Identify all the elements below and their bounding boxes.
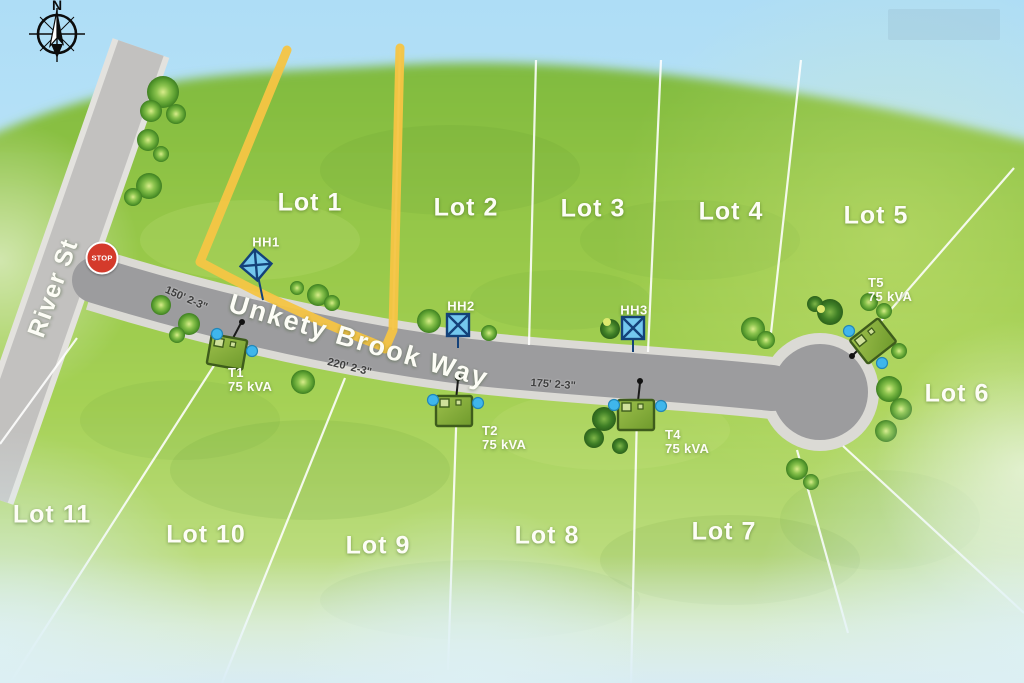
lot-label-8: Lot 8 [515, 522, 580, 551]
lot-label-6: Lot 6 [925, 380, 990, 409]
lot-label-11: Lot 11 [13, 501, 91, 530]
transformer-t4-icon [618, 400, 654, 430]
transformer-t2-capacity: 75 kVA [482, 438, 526, 452]
transformer-t5-capacity: 75 kVA [868, 290, 912, 304]
transformer-t4-capacity: 75 kVA [665, 442, 709, 456]
stop-sign: STOP [86, 242, 119, 275]
lot-label-5: Lot 5 [844, 202, 909, 231]
handhole-hh2-icon [447, 314, 469, 336]
transformer-label-t2: T2 75 kVA [482, 424, 526, 452]
transformer-t2-icon [436, 396, 472, 426]
transformer-t1-id: T1 [228, 366, 272, 380]
site-plan-graphic [0, 0, 1024, 683]
handhole-label-hh3: HH3 [620, 303, 648, 318]
transformer-label-t5: T5 75 kVA [868, 276, 912, 304]
lot-label-7: Lot 7 [692, 518, 757, 547]
lot-label-3: Lot 3 [561, 195, 626, 224]
transformer-label-t4: T4 75 kVA [665, 428, 709, 456]
transformer-t2-id: T2 [482, 424, 526, 438]
site-plan-map: N River St Unkety Brook Way STOP Lot 1 L… [0, 0, 1024, 683]
lot-label-4: Lot 4 [699, 198, 764, 227]
compass-north-label: N [52, 0, 62, 13]
transformer-t4-id: T4 [665, 428, 709, 442]
stop-sign-label: STOP [91, 254, 112, 263]
handhole-hh3-icon [622, 317, 644, 339]
lot-label-1: Lot 1 [278, 189, 343, 218]
handhole-label-hh1: HH1 [252, 235, 280, 250]
transformer-label-t1: T1 75 kVA [228, 366, 272, 394]
watermark-box [888, 9, 1000, 40]
transformer-t1-capacity: 75 kVA [228, 380, 272, 394]
lot-label-10: Lot 10 [166, 521, 246, 550]
lot-label-2: Lot 2 [434, 194, 499, 223]
handhole-label-hh2: HH2 [447, 299, 475, 314]
transformer-t5-id: T5 [868, 276, 912, 290]
lot-label-9: Lot 9 [346, 532, 411, 561]
